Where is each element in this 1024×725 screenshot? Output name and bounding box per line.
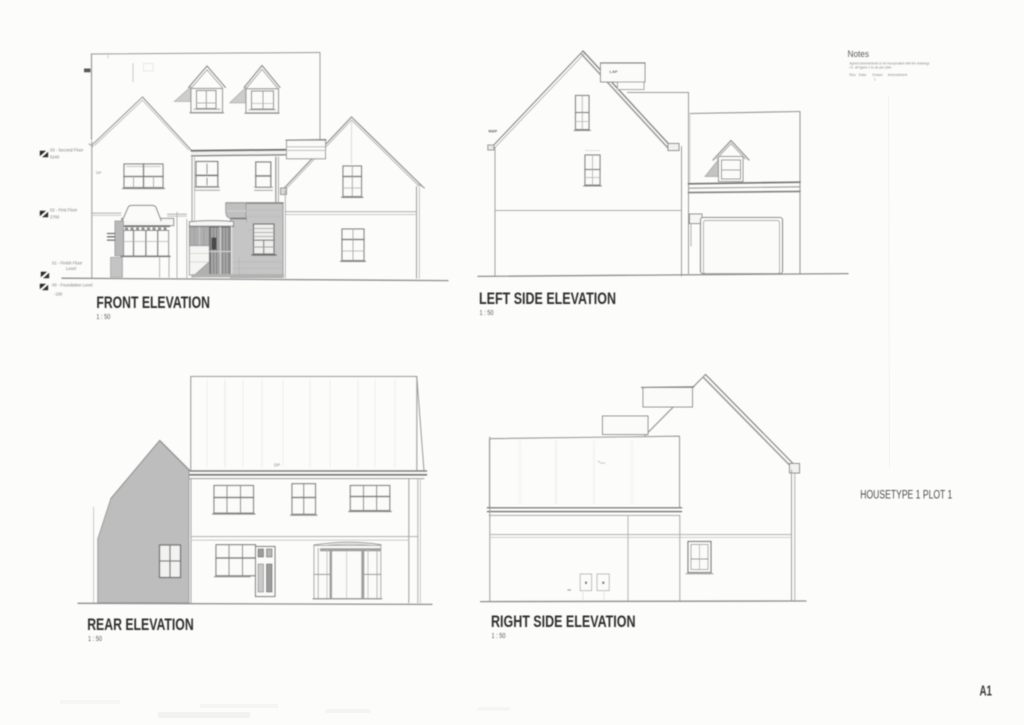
svg-text:1 : 50: 1 : 50 (480, 308, 494, 317)
svg-text:-150: -150 (54, 292, 63, 297)
svg-text:01 - Finish Floor: 01 - Finish Floor (52, 261, 83, 266)
svg-text:Notes: Notes (848, 49, 870, 60)
svg-text:REAR ELEVATION: REAR ELEVATION (87, 616, 194, 634)
svg-text:A1: A1 (980, 683, 993, 700)
svg-text:RWP: RWP (489, 130, 498, 134)
svg-text:DP: DP (96, 170, 102, 175)
svg-text:00 - Foundation Level: 00 - Foundation Level (52, 283, 93, 288)
svg-text:LEFT SIDE ELEVATION: LEFT SIDE ELEVATION (479, 290, 616, 308)
svg-text:RIGHT SIDE ELEVATION: RIGHT SIDE ELEVATION (491, 613, 636, 631)
svg-text:Level: Level (66, 266, 76, 271)
svg-text:1: 1 (874, 78, 876, 82)
svg-text:1 : 50: 1 : 50 (492, 631, 506, 640)
svg-text:Rev Date Drawn Amen: Rev Date Drawn Amendment (849, 73, 907, 77)
svg-text:02 - First Floor: 02 - First Floor (50, 208, 78, 213)
svg-text:5240: 5240 (50, 155, 60, 160)
svg-text:HOUSETYPE 1 PLOT 1: HOUSETYPE 1 PLOT 1 (860, 490, 952, 502)
svg-text:FRONT ELEVATION: FRONT ELEVATION (96, 294, 209, 312)
svg-text:1 : 50: 1 : 50 (88, 634, 102, 643)
svg-text:LAP: LAP (610, 69, 618, 74)
svg-text:DP: DP (274, 463, 280, 468)
svg-text:2700: 2700 (50, 215, 60, 220)
svg-text:03 - Second Floor: 03 - Second Floor (50, 148, 84, 153)
svg-text:i.e. all types 1 to as per pla: i.e. all types 1 to as per plan (849, 66, 891, 70)
svg-text:1 : 50: 1 : 50 (96, 312, 110, 321)
